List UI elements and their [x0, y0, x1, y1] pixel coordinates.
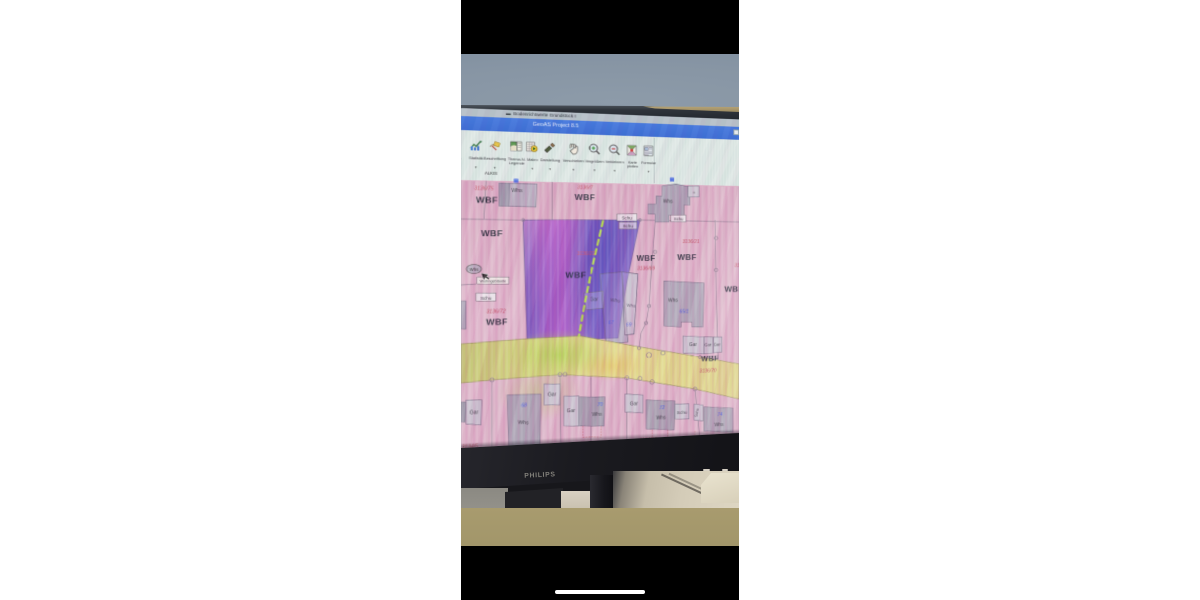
svg-text:3136/69: 3136/69: [637, 266, 655, 272]
svg-text:WBF: WBF: [486, 317, 508, 327]
svg-text:WBF: WBF: [476, 195, 498, 205]
svg-text:Gar: Gar: [590, 297, 599, 303]
svg-text:74: 74: [717, 412, 722, 418]
svg-text:3136/72: 3136/72: [486, 309, 505, 315]
svg-text:Whs: Whs: [592, 412, 602, 418]
svg-text:Gar: Gar: [689, 342, 697, 348]
svg-text:3136/70: 3136/70: [699, 368, 716, 374]
svg-text:3136/21: 3136/21: [682, 239, 699, 244]
svg-text:Whs: Whs: [663, 199, 673, 205]
svg-text:Schu: Schu: [622, 216, 633, 222]
svg-text:Gar: Gar: [469, 410, 478, 416]
svg-text:▤: ▤: [670, 177, 675, 183]
svg-text:Gar: Gar: [630, 401, 638, 407]
svg-text:Gar: Gar: [548, 392, 557, 398]
svg-text:3136/22: 3136/22: [577, 251, 595, 257]
svg-text:Gar: Gar: [705, 342, 712, 347]
svg-text:Schu: Schu: [674, 217, 684, 222]
svg-text:Gar: Gar: [567, 408, 576, 414]
svg-text:Whs: Whs: [656, 415, 666, 421]
svg-text:▤: ▤: [514, 178, 519, 184]
svg-text:WBF: WBF: [677, 253, 697, 262]
svg-text:69: 69: [626, 322, 632, 328]
svg-text:Schu: Schu: [480, 296, 492, 302]
svg-text:70: 70: [597, 402, 603, 408]
svg-text:Gar: Gar: [714, 342, 721, 347]
svg-text:Schu: Schu: [623, 224, 634, 230]
svg-text:⚛: ⚛: [692, 190, 696, 195]
svg-text:Schu: Schu: [677, 410, 687, 416]
svg-text:WBF: WBF: [575, 192, 596, 202]
svg-text:Whs: Whs: [469, 267, 479, 272]
svg-text:31: 31: [734, 263, 739, 268]
svg-text:Whs: Whs: [517, 420, 529, 426]
svg-text:WBF: WBF: [724, 285, 739, 294]
svg-text:Whs: Whs: [626, 303, 636, 310]
svg-text:WBF: WBF: [701, 354, 719, 363]
svg-text:72: 72: [659, 405, 664, 411]
svg-text:65/1: 65/1: [679, 309, 688, 315]
svg-text:3136/75: 3136/75: [474, 186, 493, 192]
svg-text:WBF: WBF: [481, 228, 503, 238]
svg-text:3136/7: 3136/7: [577, 185, 593, 191]
svg-text:Whs: Whs: [668, 298, 678, 304]
svg-text:Whs: Whs: [512, 188, 523, 194]
svg-text:WBF: WBF: [637, 254, 656, 263]
svg-text:Whs: Whs: [714, 422, 724, 428]
svg-text:WBF: WBF: [566, 270, 587, 279]
svg-text:68: 68: [521, 403, 527, 409]
